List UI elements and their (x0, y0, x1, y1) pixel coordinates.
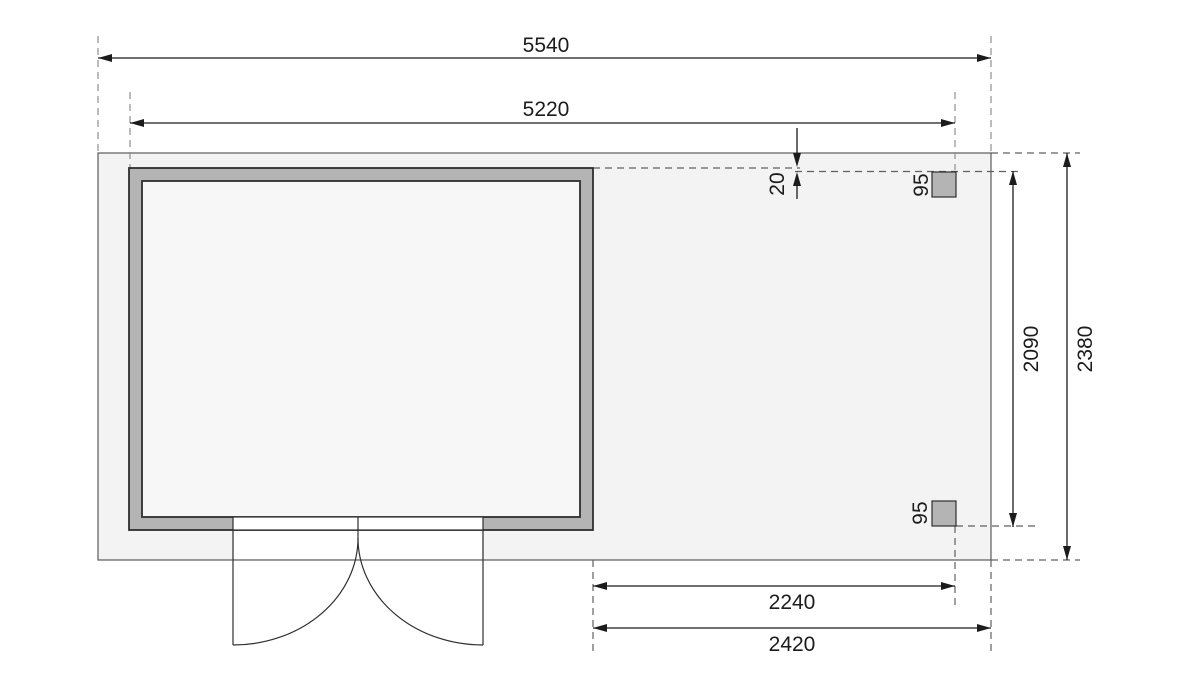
dim-label-post-bottom: 95 (909, 501, 932, 524)
cabin-interior (142, 181, 580, 517)
dim-annex-width: 2420 (593, 624, 991, 656)
arrowhead-right-icon (977, 624, 991, 632)
dim-label-post-top: 95 (910, 173, 933, 196)
arrowhead-right-icon (941, 582, 955, 590)
arrowhead-right-icon (941, 119, 955, 127)
arrowhead-left-icon (593, 582, 607, 590)
arrowhead-down-icon (1009, 513, 1017, 527)
dim-total-width: 5540 (98, 34, 991, 62)
dim-label-total-width: 5540 (523, 34, 570, 57)
arrowhead-left-icon (593, 624, 607, 632)
arrowhead-left-icon (98, 54, 112, 62)
floor-plan-page: 5540 5220 20 95 95 2090 (0, 0, 1200, 697)
dim-label-total-depth: 2380 (1074, 326, 1097, 373)
arrowhead-left-icon (130, 119, 144, 127)
dim-total-depth: 2380 (1063, 153, 1097, 560)
cabin (129, 168, 593, 645)
dim-label-annex-post-depth: 2090 (1020, 326, 1043, 373)
dim-cabin-width: 5220 (130, 98, 955, 127)
arrowhead-up-icon (1009, 171, 1017, 185)
dim-label-front-offset: 20 (766, 172, 789, 195)
post-top-right (932, 172, 956, 197)
arrowhead-right-icon (977, 54, 991, 62)
dim-annex-clear-width: 2240 (593, 582, 955, 614)
dim-label-annex-clear-width: 2240 (769, 591, 816, 614)
floor-plan-drawing: 5540 5220 20 95 95 2090 (0, 0, 1200, 697)
dim-annex-post-depth: 2090 (1009, 171, 1043, 527)
arrowhead-down-icon (1063, 546, 1071, 560)
dim-label-cabin-width: 5220 (523, 98, 570, 121)
post-bottom-right (932, 501, 956, 526)
dim-label-annex-width: 2420 (769, 633, 816, 656)
arrowhead-up-icon (1063, 153, 1071, 167)
